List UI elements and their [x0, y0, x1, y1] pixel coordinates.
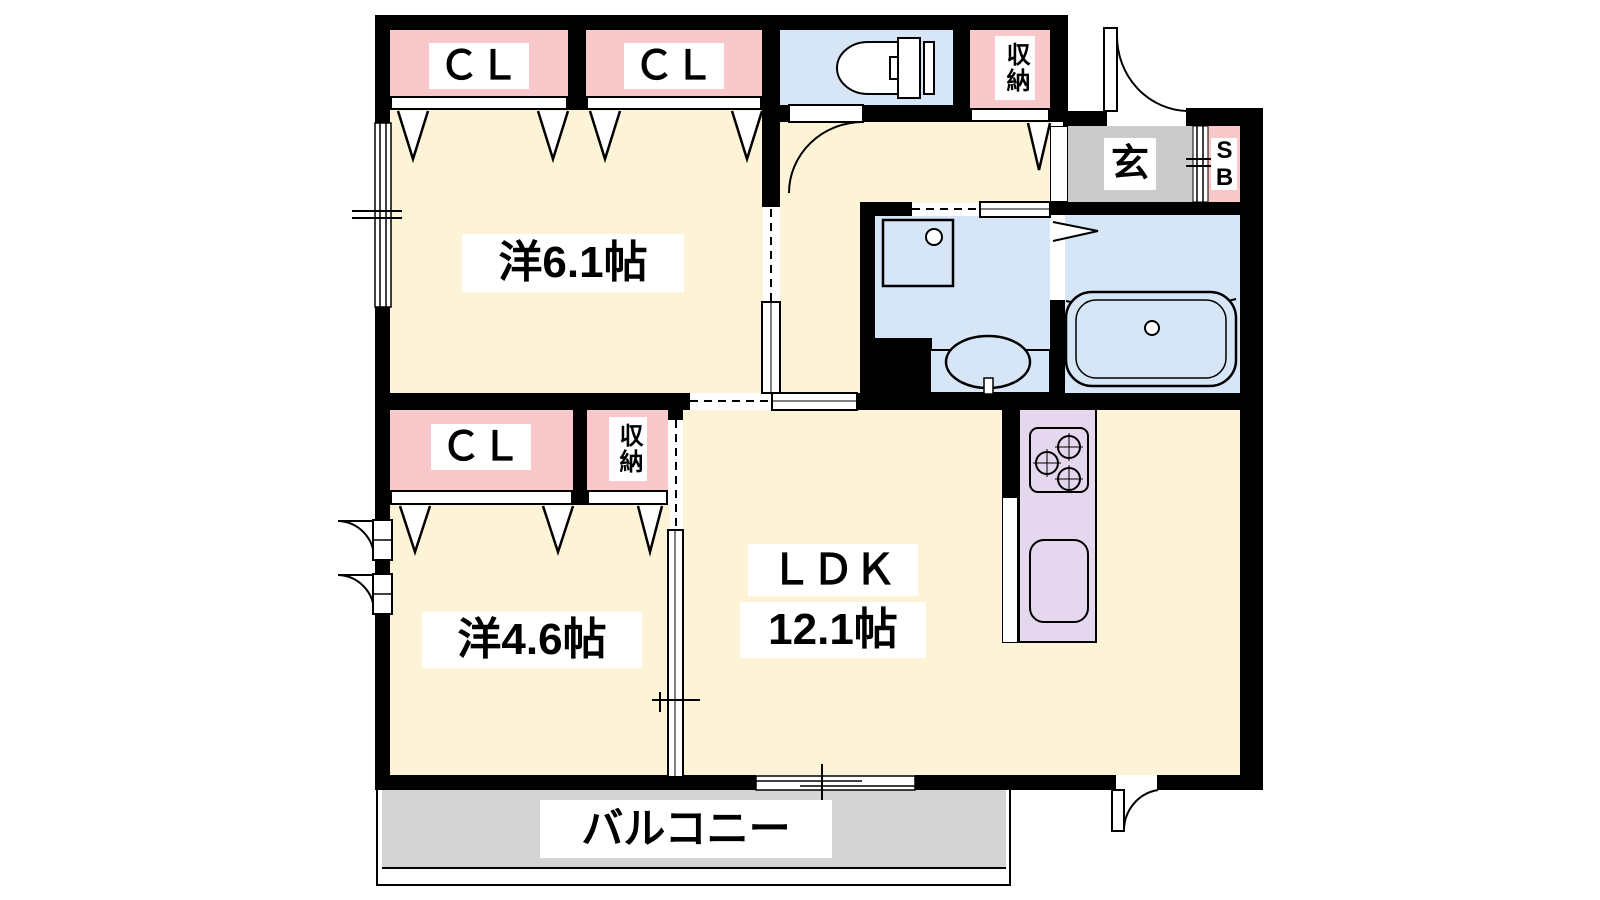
- wall-bottom-2: [915, 775, 1116, 790]
- ldk-label: ＬＤＫ: [748, 544, 918, 596]
- hallway-floor-entry: [860, 122, 1050, 203]
- wall-toilet-storage-divider: [953, 30, 970, 110]
- kitchen-counter-edge: [1002, 497, 1018, 643]
- entrance-door-icon: [1104, 28, 1187, 111]
- wall-cl-divider-bottom: [573, 410, 587, 505]
- wall-bedroom1-east: [762, 30, 780, 207]
- wall-entry-right: [1186, 108, 1240, 126]
- wall-storage-right: [1050, 15, 1068, 122]
- hallway-floor: [780, 110, 863, 393]
- entrance-label: 玄: [1104, 138, 1156, 190]
- wall-bottom-3: [1157, 775, 1240, 790]
- service-door-icon: [1112, 790, 1158, 831]
- bedroom2-label: 洋4.6帖: [422, 612, 642, 668]
- closet-top-mid-label: ＣＬ: [624, 43, 724, 89]
- kitchen-counter: [1018, 408, 1097, 643]
- closet-top-mid-front: [586, 96, 762, 110]
- wall-partition-stub: [668, 393, 683, 420]
- balcony-door-gap: [1116, 775, 1157, 790]
- storage-top-label: 収納: [995, 36, 1035, 100]
- storage-bottom-front: [587, 490, 668, 505]
- storage-top-front: [970, 108, 1050, 122]
- wall-entrance-south: [1050, 202, 1240, 215]
- entrance-step-edge: [1050, 126, 1068, 202]
- shoe-box-label: SB: [1211, 138, 1237, 190]
- bedroom1-label: 洋6.1帖: [462, 234, 684, 292]
- ldk-size-label: 12.1帖: [740, 602, 926, 658]
- wall-washroom-block: [860, 338, 932, 395]
- closet-top-left-label: ＣＬ: [429, 43, 529, 89]
- wall-right: [1240, 108, 1263, 790]
- wall-bottom-1: [375, 775, 756, 790]
- balcony-label: バルコニー: [540, 800, 832, 858]
- sliding-door-bedroom1: [762, 207, 780, 393]
- wall-bath-west: [1050, 300, 1065, 400]
- closet-bottom-label: ＣＬ: [431, 424, 531, 470]
- bathroom-floor: [1065, 215, 1240, 393]
- wall-mid-horizontal-1: [375, 393, 690, 410]
- closet-top-left-front: [390, 96, 568, 110]
- storage-bottom-label: 収納: [609, 417, 647, 481]
- wall-top: [375, 15, 1068, 30]
- sliding-door-washroom: [912, 202, 1050, 217]
- sliding-door-ldk: [690, 393, 857, 410]
- wall-entry-left: [1063, 111, 1107, 126]
- toilet-floor: [780, 30, 953, 110]
- wall-under-toilet: [863, 105, 970, 122]
- bath-door-gap: [1050, 215, 1065, 300]
- floor-plan: ＣＬ ＣＬ 収納 玄 SB 洋6.1帖 ＣＬ 収納 洋4.6帖 ＬＤＫ 12.1…: [0, 0, 1600, 900]
- wall-kitchen-stub: [1002, 408, 1018, 497]
- wall-cl-divider-top: [568, 30, 586, 110]
- closet-bottom-front: [390, 490, 573, 505]
- wall-under-toilet-stub: [780, 105, 789, 122]
